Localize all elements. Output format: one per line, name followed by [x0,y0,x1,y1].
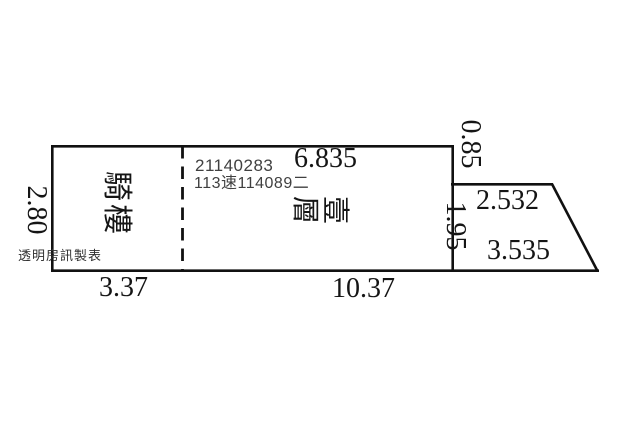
dimension-left-height: 2.80 [22,178,50,242]
dimension-notch-width: 2.532 [476,187,539,215]
registry-number-line2: 113速114089二 [194,176,309,192]
dimension-slant-length: 3.535 [487,237,550,265]
dimension-right-lower: 1.95 [441,194,469,258]
dimension-bottom-right-width: 10.37 [332,275,395,303]
first-floor-room-label: 壹層 [289,195,349,225]
dimension-bottom-left-width: 3.37 [99,274,148,302]
dimension-right-upper: 0.85 [456,112,484,176]
dimension-top-width: 6.835 [294,145,357,173]
arcade-room-label: 騎樓 [101,171,131,237]
credit-label: 透明房訊製表 [18,249,102,262]
registry-number-line1: 21140283 [195,157,273,174]
floor-plan-canvas: 騎樓 壹層 21140283 113速114089二 透明房訊製表 6.835 … [0,0,640,442]
slant-wall-line [552,184,598,271]
